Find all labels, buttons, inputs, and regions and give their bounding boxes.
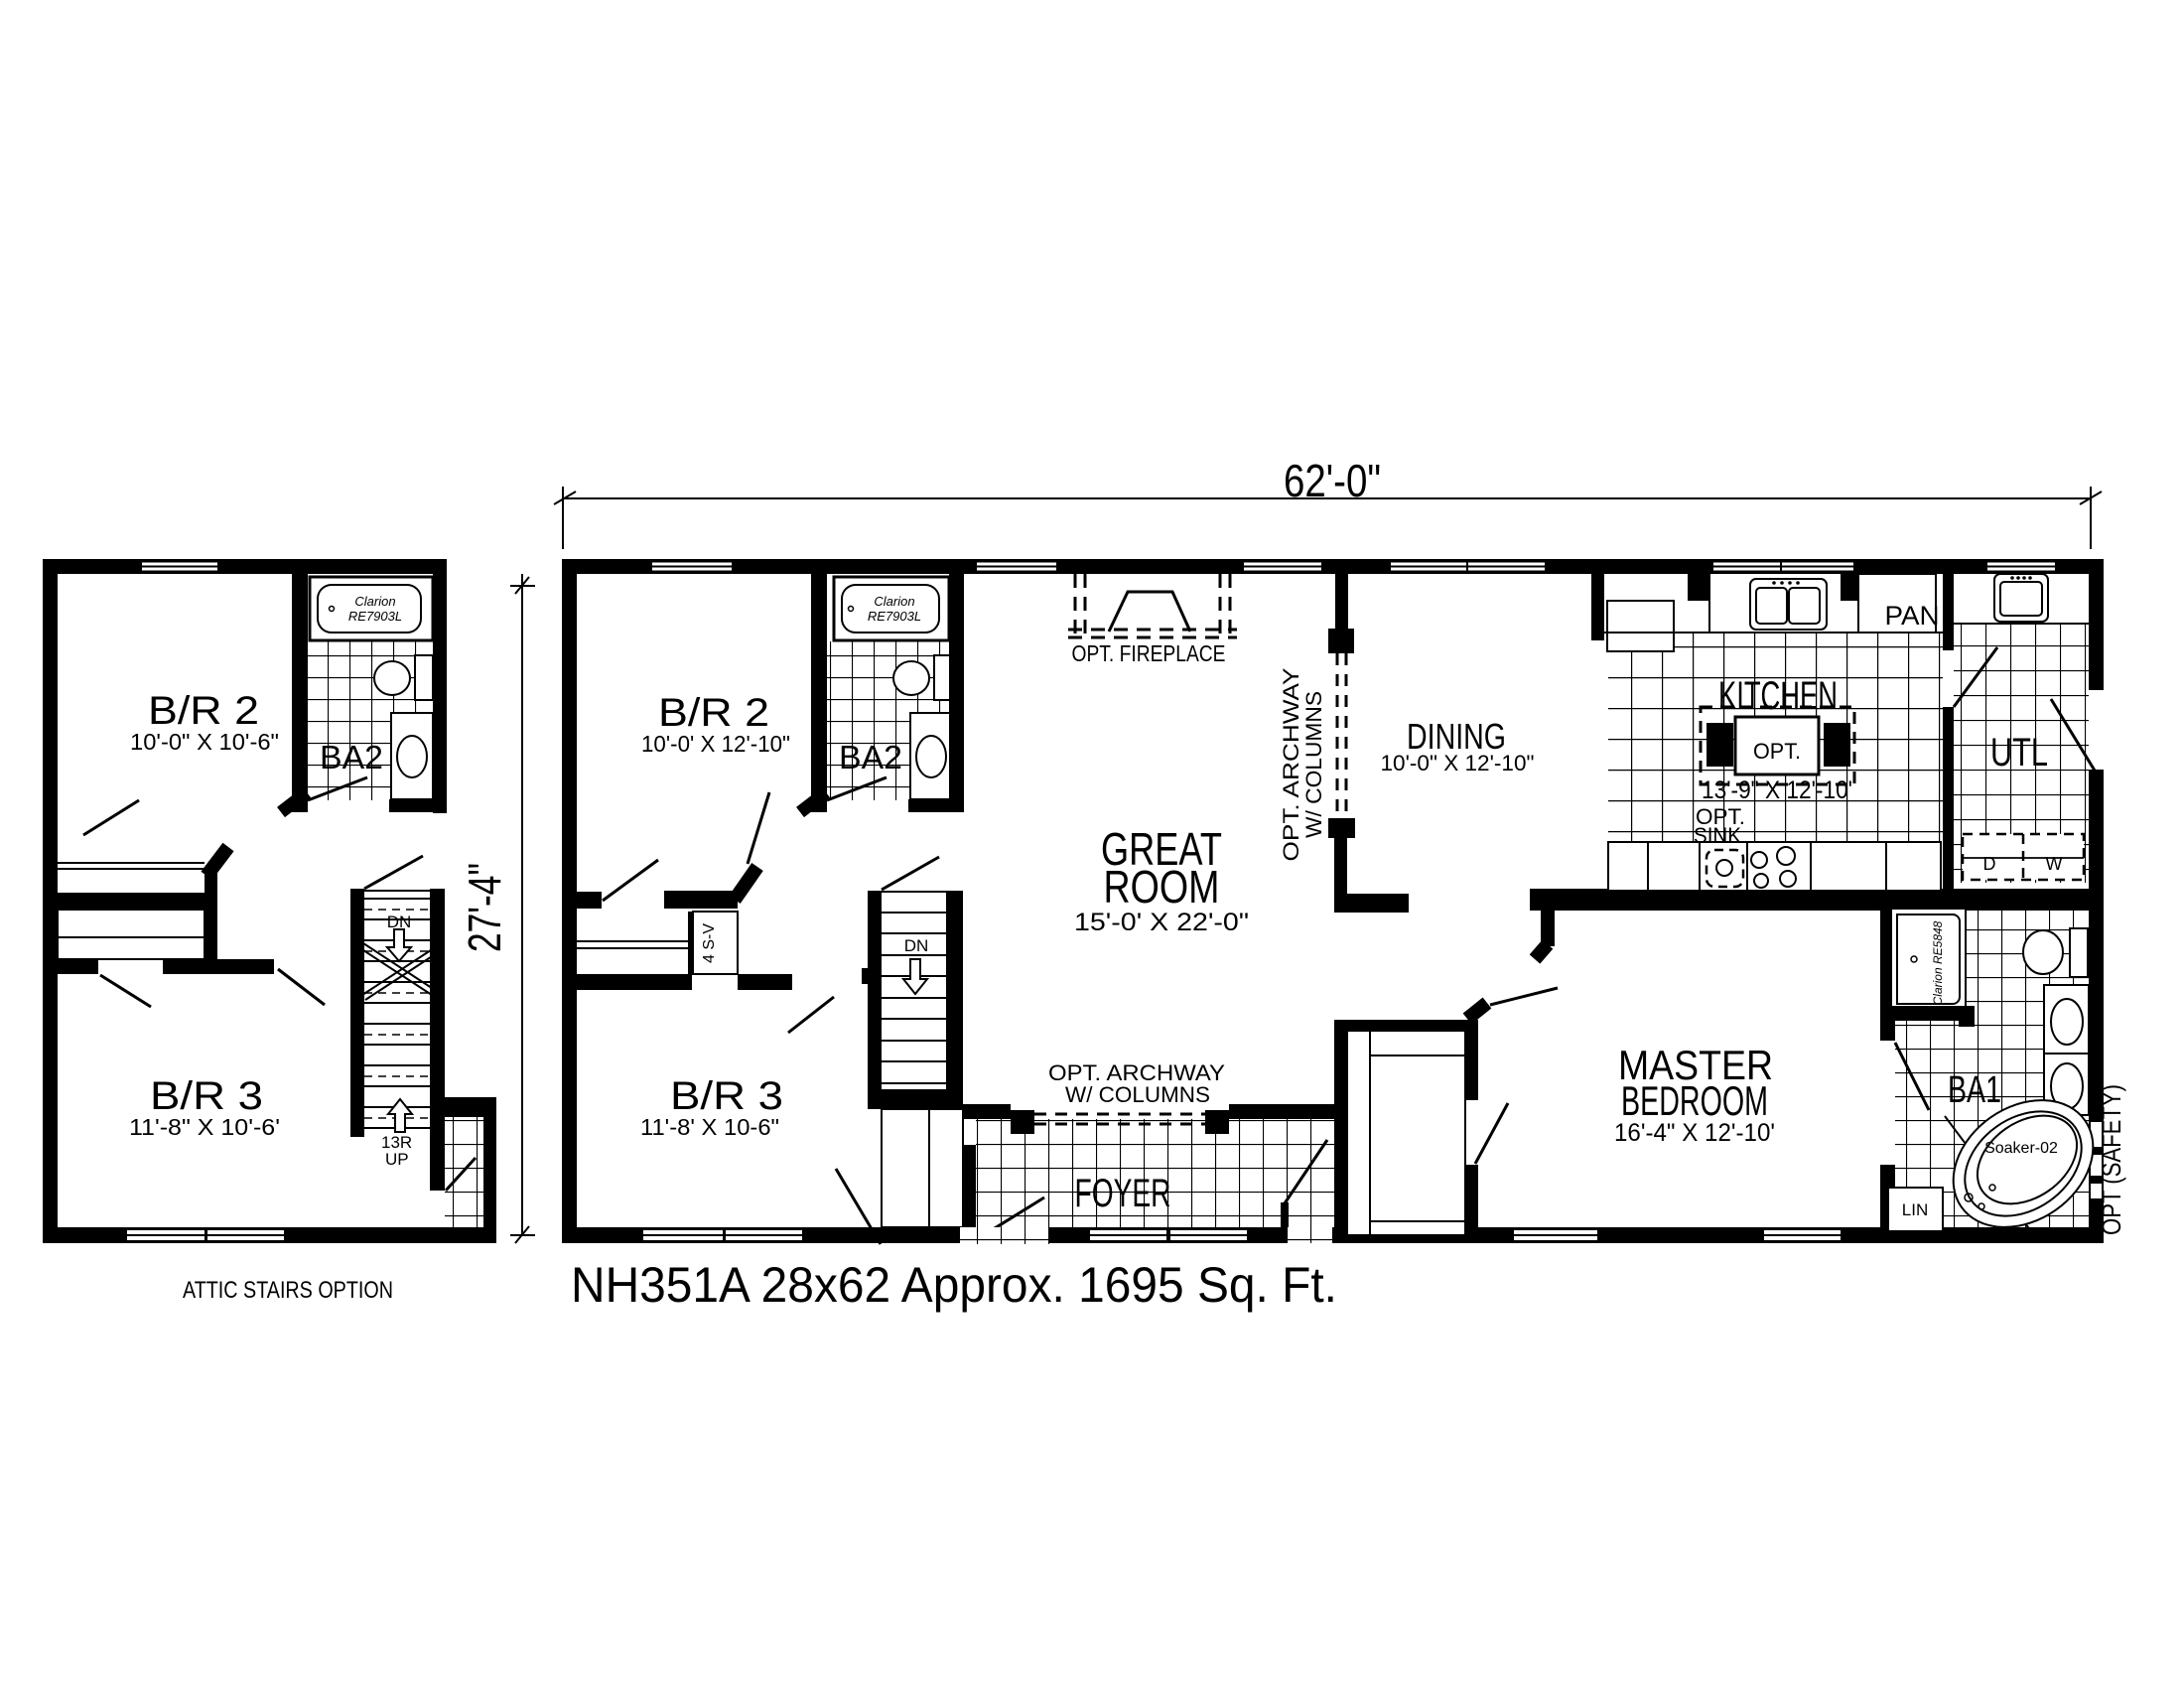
svg-text:B/R 2: B/R 2: [148, 689, 259, 733]
svg-text:RE7903L: RE7903L: [348, 609, 402, 624]
svg-text:B/R 3: B/R 3: [150, 1074, 263, 1118]
svg-text:16'-4" X 12'-10': 16'-4" X 12'-10': [1614, 1119, 1775, 1147]
svg-text:10'-0' X 12'-10": 10'-0' X 12'-10": [641, 731, 790, 757]
svg-text:11'-8' X 10-6": 11'-8' X 10-6": [640, 1114, 779, 1140]
svg-text:ATTIC STAIRS OPTION: ATTIC STAIRS OPTION: [183, 1277, 393, 1304]
svg-text:BA2: BA2: [320, 739, 383, 775]
svg-text:27'-4": 27'-4": [459, 863, 510, 952]
svg-text:13'-9" X 12'-10': 13'-9" X 12'-10': [1702, 776, 1852, 804]
svg-text:LIN: LIN: [1902, 1200, 1928, 1219]
svg-text:PAN: PAN: [1885, 601, 1940, 631]
svg-text:BA1: BA1: [1948, 1069, 2001, 1111]
svg-text:OPT. ARCHWAY: OPT. ARCHWAY: [1279, 667, 1303, 861]
svg-text:UTL: UTL: [1990, 731, 2048, 774]
svg-text:W/ COLUMNS: W/ COLUMNS: [1065, 1082, 1210, 1107]
svg-text:10'-0" X 12'-10": 10'-0" X 12'-10": [1381, 751, 1535, 775]
svg-text:OPT. FIREPLACE: OPT. FIREPLACE: [1072, 640, 1226, 666]
svg-text:4 S-V: 4 S-V: [701, 923, 718, 963]
svg-text:B/R 2: B/R 2: [658, 691, 769, 735]
svg-text:OPT.: OPT.: [1753, 739, 1801, 764]
svg-text:SINK: SINK: [1694, 823, 1741, 848]
svg-text:W: W: [2046, 854, 2063, 874]
svg-text:10'-0" X 10'-6": 10'-0" X 10'-6": [130, 729, 279, 755]
svg-text:ROOM: ROOM: [1104, 861, 1220, 913]
svg-text:Clarion: Clarion: [874, 594, 914, 609]
svg-text:OPT (SAFETY): OPT (SAFETY): [2097, 1084, 2126, 1235]
svg-text:B/R 3: B/R 3: [670, 1074, 783, 1118]
svg-text:RE7903L: RE7903L: [868, 609, 921, 624]
svg-text:DN: DN: [904, 936, 929, 955]
svg-text:KITCHEN: KITCHEN: [1718, 674, 1838, 718]
svg-text:NH351A 28x62 Approx. 1695 Sq: NH351A 28x62 Approx. 1695 Sq. Ft.: [571, 1257, 1337, 1313]
svg-text:15'-0' X 22'-0": 15'-0' X 22'-0": [1074, 909, 1249, 936]
svg-text:62'-0": 62'-0": [1284, 455, 1381, 506]
svg-text:UP: UP: [385, 1150, 409, 1169]
svg-text:W/ COLUMNS: W/ COLUMNS: [1301, 691, 1326, 838]
svg-text:Clarion: Clarion: [354, 594, 395, 609]
svg-text:D: D: [1983, 854, 1996, 874]
svg-text:11'-8" X 10'-6': 11'-8" X 10'-6': [129, 1114, 280, 1140]
svg-text:Clarion RE5848: Clarion RE5848: [1931, 920, 1945, 1005]
svg-text:BEDROOM: BEDROOM: [1621, 1077, 1768, 1124]
svg-text:Soaker-02: Soaker-02: [1984, 1140, 2058, 1157]
svg-text:BA2: BA2: [839, 739, 902, 775]
svg-text:FOYER: FOYER: [1075, 1172, 1171, 1215]
